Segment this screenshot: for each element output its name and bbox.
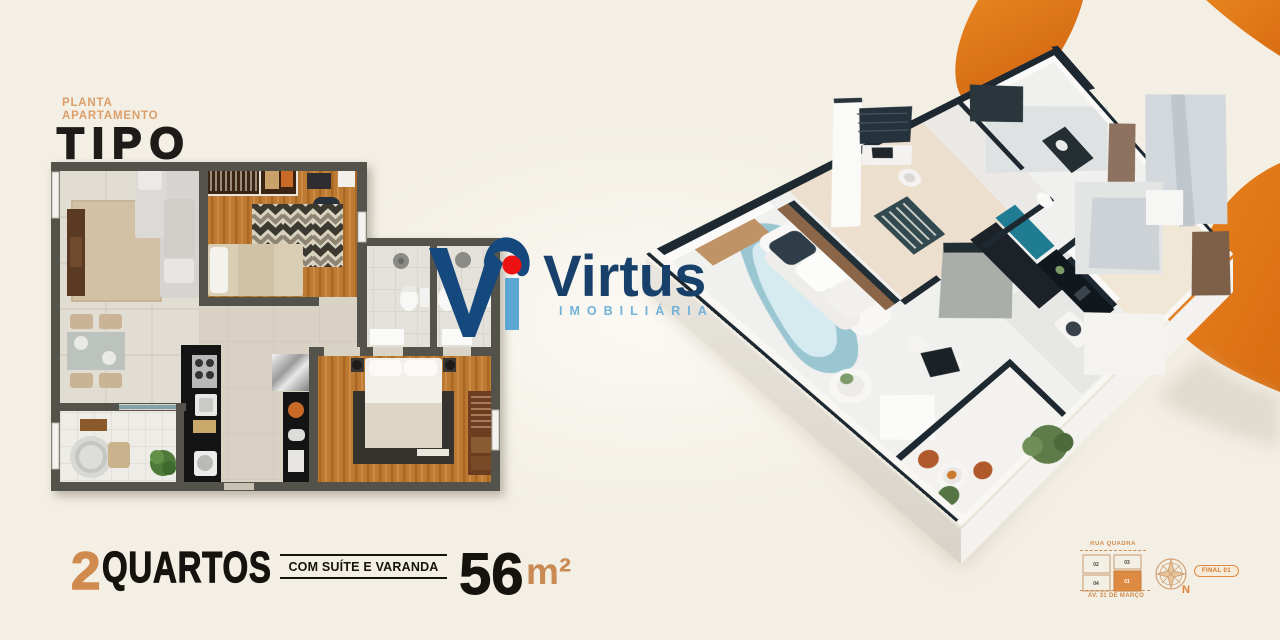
svg-text:03: 03 <box>1124 560 1130 566</box>
svg-text:02: 02 <box>1093 562 1099 568</box>
svg-text:04: 04 <box>1093 581 1099 587</box>
svg-text:N: N <box>1182 584 1190 596</box>
svg-text:01: 01 <box>1124 579 1130 585</box>
